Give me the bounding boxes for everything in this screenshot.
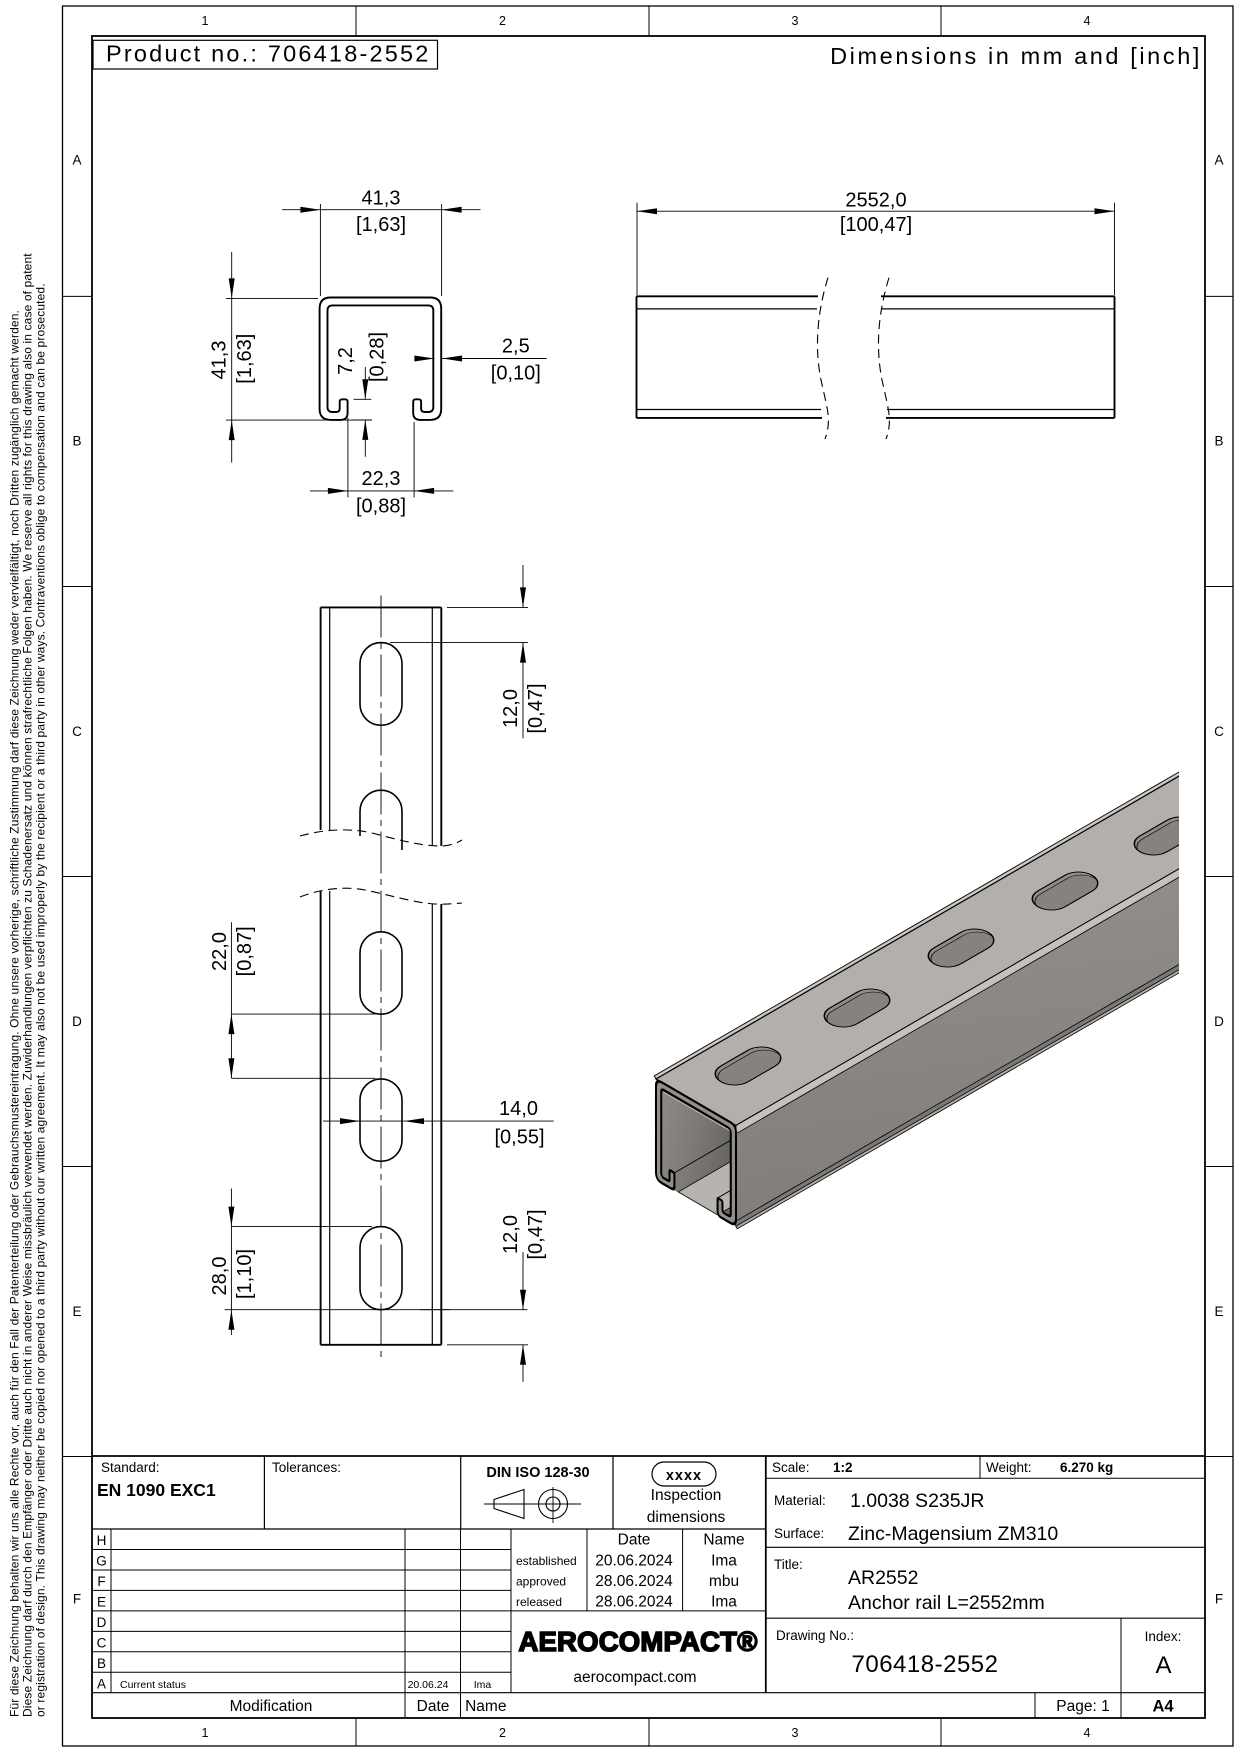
svg-text:41,3: 41,3 [362, 188, 401, 210]
svg-text:A: A [1214, 153, 1223, 168]
svg-text:22,0: 22,0 [209, 932, 231, 971]
svg-text:B: B [1214, 434, 1223, 449]
svg-text:[100,47]: [100,47] [840, 214, 912, 236]
svg-text:3: 3 [792, 1726, 799, 1740]
svg-text:C: C [97, 1635, 107, 1650]
svg-text:A: A [97, 1676, 106, 1691]
svg-text:AR2552: AR2552 [848, 1567, 918, 1589]
svg-text:Weight:: Weight: [986, 1460, 1032, 1475]
svg-text:41,3: 41,3 [209, 341, 231, 380]
svg-text:[1,63]: [1,63] [356, 214, 406, 236]
svg-text:G: G [96, 1554, 107, 1569]
svg-text:E: E [72, 1304, 81, 1319]
svg-text:H: H [97, 1533, 107, 1548]
svg-text:[0,88]: [0,88] [356, 496, 406, 518]
svg-text:[0,47]: [0,47] [525, 683, 547, 733]
svg-text:Ima: Ima [474, 1679, 492, 1691]
svg-text:Diese Zeichnung darf durch den: Diese Zeichnung darf durch den Empfänger… [21, 253, 35, 1717]
svg-text:1:2: 1:2 [833, 1460, 853, 1475]
svg-text:20.06.2024: 20.06.2024 [595, 1553, 673, 1570]
svg-text:Ima: Ima [711, 1553, 737, 1570]
svg-text:Ima: Ima [711, 1594, 737, 1611]
svg-text:[0,55]: [0,55] [494, 1127, 544, 1149]
svg-text:Page: 1: Page: 1 [1056, 1698, 1109, 1715]
svg-text:A: A [1155, 1652, 1171, 1679]
svg-text:E: E [1214, 1304, 1223, 1319]
svg-text:Index:: Index: [1145, 1629, 1182, 1644]
svg-text:AEROCOMPACT®: AEROCOMPACT® [518, 1626, 757, 1657]
svg-text:Name: Name [465, 1698, 506, 1715]
svg-text:28,0: 28,0 [209, 1257, 231, 1296]
svg-text:xxxx: xxxx [666, 1468, 702, 1484]
svg-text:B: B [72, 434, 81, 449]
svg-text:Inspection: Inspection [651, 1487, 722, 1504]
svg-text:DIN ISO 128-30: DIN ISO 128-30 [486, 1465, 589, 1481]
svg-text:A: A [72, 153, 81, 168]
svg-text:[0,87]: [0,87] [234, 926, 256, 976]
svg-text:Scale:: Scale: [772, 1460, 810, 1475]
svg-text:Material:: Material: [774, 1493, 826, 1508]
svg-text:7,2: 7,2 [335, 347, 357, 375]
svg-text:or registration of design. Thi: or registration of design. This drawing … [34, 283, 48, 1717]
svg-text:established: established [516, 1554, 577, 1568]
svg-text:D: D [72, 1014, 82, 1029]
svg-text:EN 1090 EXC1: EN 1090 EXC1 [97, 1480, 216, 1500]
svg-text:A4: A4 [1152, 1698, 1174, 1716]
svg-text:Date: Date [417, 1698, 450, 1715]
svg-text:Tolerances:: Tolerances: [272, 1460, 341, 1475]
svg-text:D: D [97, 1615, 107, 1630]
svg-text:Surface:: Surface: [774, 1526, 824, 1541]
svg-text:[1,10]: [1,10] [234, 1249, 256, 1299]
svg-text:Standard:: Standard: [101, 1460, 160, 1475]
svg-text:F: F [73, 1592, 81, 1607]
svg-text:dimensions: dimensions [647, 1509, 726, 1526]
svg-text:4: 4 [1084, 1726, 1091, 1740]
svg-text:2: 2 [499, 14, 506, 28]
svg-text:F: F [97, 1574, 105, 1589]
svg-text:14,0: 14,0 [499, 1098, 538, 1120]
svg-text:Anchor rail L=2552mm: Anchor rail L=2552mm [848, 1592, 1045, 1614]
svg-text:706418-2552: 706418-2552 [852, 1651, 999, 1678]
svg-text:D: D [1214, 1014, 1224, 1029]
svg-text:E: E [97, 1594, 106, 1609]
svg-text:2: 2 [499, 1726, 506, 1740]
svg-text:28.06.2024: 28.06.2024 [595, 1594, 673, 1611]
svg-text:aerocompact.com: aerocompact.com [573, 1669, 696, 1686]
svg-text:28.06.2024: 28.06.2024 [595, 1573, 673, 1590]
svg-text:3: 3 [792, 14, 799, 28]
svg-text:F: F [1215, 1592, 1223, 1607]
svg-text:Zinc-Magensium ZM310: Zinc-Magensium ZM310 [848, 1523, 1058, 1545]
svg-text:4: 4 [1084, 14, 1091, 28]
svg-text:12,0: 12,0 [500, 689, 522, 728]
svg-text:[0,10]: [0,10] [491, 363, 541, 385]
svg-text:1.0038 S235JR: 1.0038 S235JR [850, 1490, 984, 1512]
svg-text:1: 1 [202, 14, 209, 28]
svg-text:2552,0: 2552,0 [845, 190, 906, 212]
svg-text:Drawing No.:: Drawing No.: [776, 1628, 854, 1643]
svg-text:Dimensions in mm and [inch]: Dimensions in mm and [inch] [830, 43, 1202, 69]
svg-text:mbu: mbu [709, 1573, 739, 1590]
svg-text:12,0: 12,0 [500, 1215, 522, 1254]
svg-text:B: B [97, 1656, 106, 1671]
svg-text:C: C [72, 724, 82, 739]
svg-text:Product no.: 706418-2552: Product no.: 706418-2552 [106, 41, 431, 67]
svg-text:Name: Name [703, 1532, 744, 1549]
svg-text:C: C [1214, 724, 1224, 739]
svg-text:1: 1 [202, 1726, 209, 1740]
svg-text:[0,28]: [0,28] [366, 332, 388, 382]
svg-text:approved: approved [516, 1575, 566, 1589]
svg-text:Current status: Current status [120, 1679, 186, 1691]
svg-text:20.06.24: 20.06.24 [408, 1679, 449, 1691]
svg-text:2,5: 2,5 [502, 336, 530, 358]
svg-text:Für diese Zeichnung behalten w: Für diese Zeichnung behalten wir uns all… [8, 310, 22, 1717]
svg-text:22,3: 22,3 [362, 468, 401, 490]
svg-text:[0,47]: [0,47] [525, 1209, 547, 1259]
svg-text:6.270 kg: 6.270 kg [1060, 1460, 1113, 1475]
svg-text:[1,63]: [1,63] [234, 334, 256, 384]
svg-text:Title:: Title: [774, 1557, 803, 1572]
svg-text:Modification: Modification [230, 1698, 313, 1715]
svg-text:released: released [516, 1595, 562, 1609]
svg-text:Date: Date [618, 1532, 651, 1549]
